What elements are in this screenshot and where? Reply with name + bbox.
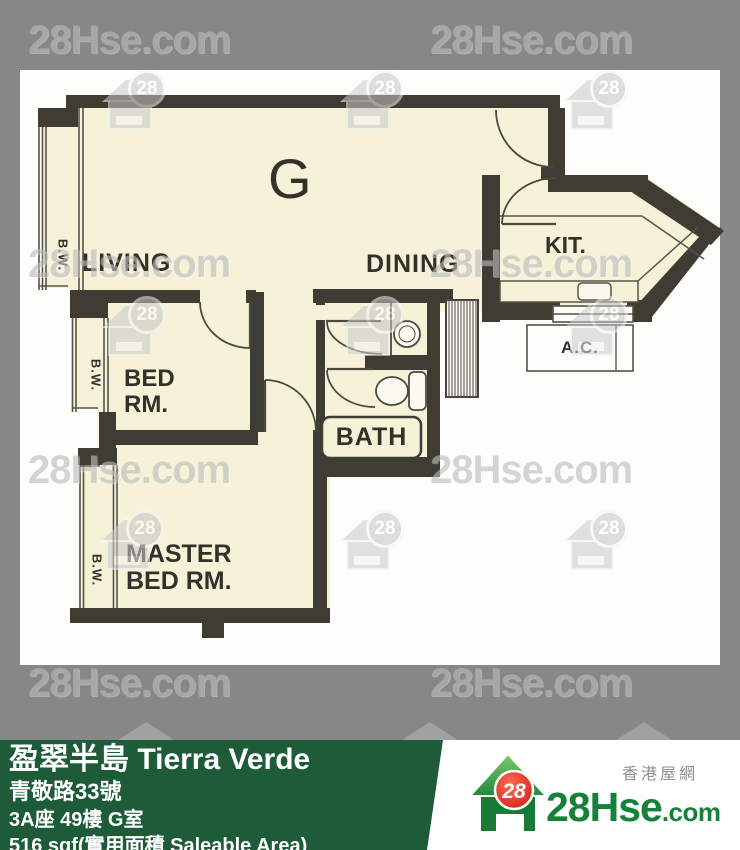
- bay-window-label-bedroom: B.W.: [89, 359, 104, 391]
- living-room-label: LIVING: [82, 249, 171, 278]
- master-bedroom-label: MASTER BED RM.: [126, 541, 232, 595]
- dining-room-label: DINING: [366, 250, 460, 279]
- brand-name-main: 28Hse: [546, 784, 662, 831]
- brand-house-logo-icon[interactable]: 28: [468, 752, 548, 834]
- master-bedroom-label-line1: MASTER: [126, 541, 232, 568]
- brand-site-name[interactable]: 28Hse.com: [546, 784, 721, 831]
- master-bedroom-label-line2: BED RM.: [126, 568, 232, 595]
- floorplan-page: G LIVING DINING KIT. A.C. BED RM. MASTER…: [0, 0, 740, 850]
- storage-cabinet: [446, 300, 478, 397]
- brand-name-suffix: .com: [662, 797, 721, 828]
- kitchen-label: KIT.: [545, 232, 586, 259]
- kitchen-window-sill: [553, 306, 633, 322]
- unit-letter-label: G: [268, 146, 312, 211]
- bedroom-label: BED RM.: [124, 366, 175, 418]
- bedroom-label-line2: RM.: [124, 392, 175, 418]
- bay-window-label-living: B.W.: [56, 239, 71, 271]
- brand-badge-number: 28: [501, 780, 526, 803]
- ac-platform-label: A.C.: [527, 325, 633, 371]
- brand-tagline: 香港屋網: [622, 760, 698, 784]
- bedroom-label-line1: BED: [124, 366, 175, 392]
- bath-label: BATH: [322, 417, 421, 458]
- bay-window-label-master: B.W.: [90, 554, 105, 586]
